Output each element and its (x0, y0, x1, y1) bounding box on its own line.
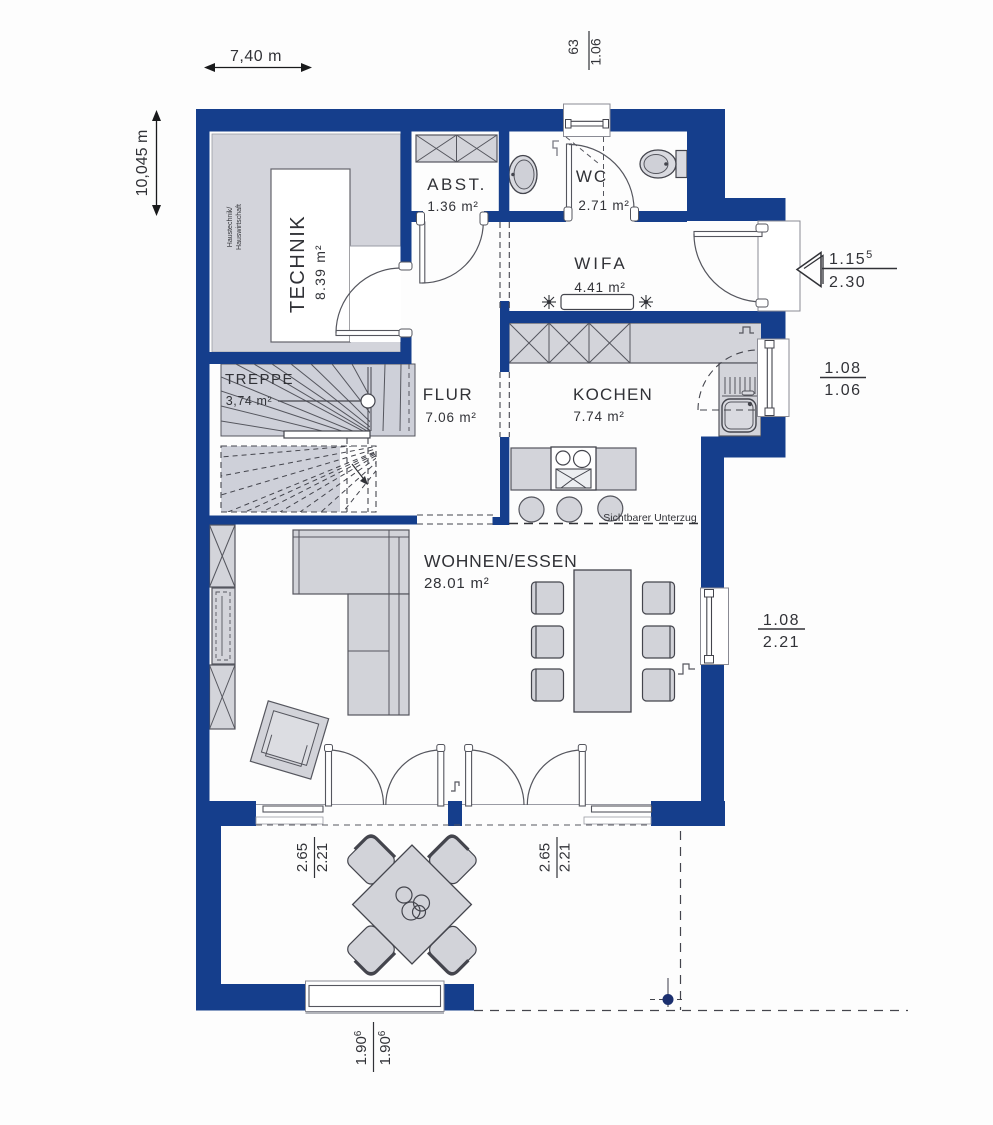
svg-text:WIFA: WIFA (574, 254, 628, 273)
svg-text:KOCHEN: KOCHEN (573, 385, 653, 404)
svg-text:Haustechnik/: Haustechnik/ (227, 207, 234, 248)
svg-text:4.41 m²: 4.41 m² (574, 280, 625, 295)
svg-text:8.39 m²: 8.39 m² (312, 244, 328, 300)
svg-text:2.65: 2.65 (537, 843, 554, 872)
svg-text:10,045 m: 10,045 m (134, 130, 151, 197)
svg-text:1.36 m²: 1.36 m² (427, 199, 478, 214)
svg-text:2.21: 2.21 (557, 843, 574, 872)
svg-text:Sichtbarer Unterzug: Sichtbarer Unterzug (603, 512, 697, 524)
svg-text:63: 63 (565, 39, 581, 55)
svg-text:28.01 m²: 28.01 m² (424, 575, 490, 592)
svg-text:2.30: 2.30 (829, 274, 866, 291)
svg-text:1.06: 1.06 (588, 38, 604, 65)
svg-text:7.06 m²: 7.06 m² (425, 410, 476, 425)
svg-text:TECHNIK: TECHNIK (287, 215, 309, 313)
svg-text:2.71 m²: 2.71 m² (578, 198, 629, 213)
svg-text:1.06: 1.06 (824, 382, 861, 399)
svg-text:ABST.: ABST. (427, 175, 487, 194)
svg-text:2.21: 2.21 (314, 843, 331, 872)
svg-text:7,40 m: 7,40 m (230, 48, 282, 65)
svg-text:FLUR: FLUR (423, 385, 473, 404)
svg-text:2.21: 2.21 (763, 634, 800, 651)
svg-text:3,74 m²: 3,74 m² (226, 394, 273, 408)
svg-text:Hauswirtschaft: Hauswirtschaft (236, 204, 243, 250)
svg-text:TREPPE: TREPPE (225, 371, 294, 388)
svg-text:1.08: 1.08 (763, 612, 800, 629)
svg-text:1.08: 1.08 (824, 360, 861, 377)
svg-text:2.65: 2.65 (294, 843, 311, 872)
svg-text:WC: WC (576, 167, 608, 186)
svg-text:7.74 m²: 7.74 m² (573, 409, 624, 424)
svg-text:WOHNEN/ESSEN: WOHNEN/ESSEN (424, 551, 578, 571)
